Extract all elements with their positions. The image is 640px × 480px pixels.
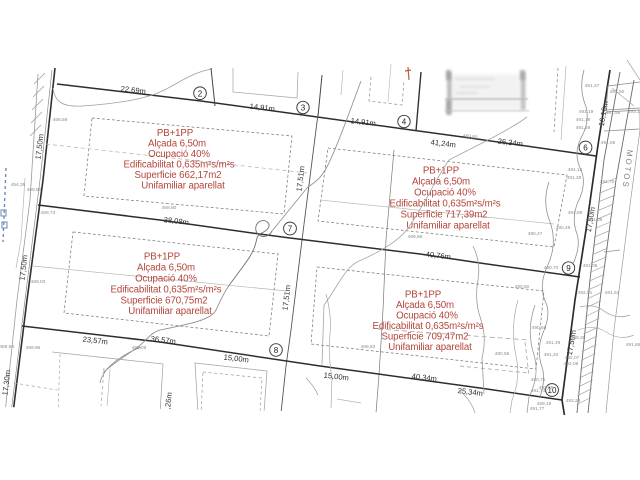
svg-text:8: 8 <box>274 346 279 355</box>
svg-text:469,66: 469,66 <box>408 234 423 240</box>
svg-text:490,55: 490,55 <box>495 351 510 357</box>
svg-text:Superficie 717,39m2: Superficie 717,39m2 <box>401 210 488 221</box>
svg-text:469,73: 469,73 <box>41 210 56 216</box>
svg-text:491,89: 491,89 <box>568 210 583 216</box>
svg-text:4: 4 <box>402 118 407 127</box>
svg-text:PB+1PP: PB+1PP <box>144 252 180 263</box>
svg-text:17,50m: 17,50m <box>33 133 45 160</box>
svg-text:23,57m: 23,57m <box>82 335 108 347</box>
svg-text:PB+1PP: PB+1PP <box>157 128 193 139</box>
svg-text:Ocupació 40%: Ocupació 40% <box>135 274 197 285</box>
svg-text:469,03: 469,03 <box>31 279 46 285</box>
svg-text:491,12: 491,12 <box>568 167 583 173</box>
svg-text:7: 7 <box>288 225 293 234</box>
svg-text:491,70: 491,70 <box>600 179 615 185</box>
svg-text:491,19: 491,19 <box>579 109 594 115</box>
svg-text:491,28: 491,28 <box>567 175 582 181</box>
svg-text:17,50m: 17,50m <box>565 329 578 356</box>
svg-text:469,80: 469,80 <box>162 205 177 211</box>
svg-text:469,90: 469,90 <box>27 187 42 193</box>
svg-text:490,50: 490,50 <box>515 284 530 290</box>
svg-text:493,18: 493,18 <box>628 109 640 115</box>
svg-text:3: 3 <box>301 104 306 113</box>
svg-text:Unifamiliar aparellat: Unifamiliar aparellat <box>406 221 490 232</box>
svg-text:492,01: 492,01 <box>578 290 593 296</box>
svg-text:469,80: 469,80 <box>462 133 478 141</box>
svg-text:454,35: 454,35 <box>11 182 26 188</box>
svg-text:469,96: 469,96 <box>26 345 41 351</box>
svg-text:17,30m: 17,30m <box>0 369 12 396</box>
svg-text:149,36: 149,36 <box>571 335 586 341</box>
svg-text:17,51m: 17,51m <box>280 284 292 311</box>
svg-text:Unifamiliar aparellat: Unifamiliar aparellat <box>388 342 472 353</box>
svg-text:Edificabilitat 0,635m²s/m²s: Edificabilitat 0,635m²s/m²s <box>373 321 484 332</box>
svg-text:Ocupació 40%: Ocupació 40% <box>396 311 458 322</box>
svg-text:PB+1PP: PB+1PP <box>405 290 441 301</box>
svg-text:26,34m: 26,34m <box>497 137 523 149</box>
svg-text:490,47: 490,47 <box>528 231 543 237</box>
svg-text:491,18: 491,18 <box>576 117 591 123</box>
svg-text:Ocupació 40%: Ocupació 40% <box>148 149 210 160</box>
svg-text:Edificabilitat 0,635m²s/m²s: Edificabilitat 0,635m²s/m²s <box>390 199 501 210</box>
svg-text:Superficie 670,75m2: Superficie 670,75m2 <box>121 296 208 307</box>
svg-text:Alçada 6,50m: Alçada 6,50m <box>396 300 454 311</box>
svg-text:Alçada 6,50m: Alçada 6,50m <box>148 139 206 150</box>
svg-text:Edificabilitat 0,635m²s/m²s: Edificabilitat 0,635m²s/m²s <box>111 285 222 296</box>
svg-text:492,23: 492,23 <box>566 398 581 404</box>
svg-text:15,00m: 15,00m <box>223 353 249 365</box>
svg-text:22,69m: 22,69m <box>120 84 146 96</box>
svg-text:491,28: 491,28 <box>576 125 591 131</box>
svg-text:490,49: 490,49 <box>556 225 571 231</box>
svg-text:491,40: 491,40 <box>544 352 559 358</box>
svg-text:491,65: 491,65 <box>626 342 640 348</box>
svg-text:491,59: 491,59 <box>601 140 616 146</box>
svg-text:36,57m: 36,57m <box>150 334 176 346</box>
svg-text:38,08m: 38,08m <box>163 215 189 227</box>
svg-text:491,49: 491,49 <box>546 340 561 346</box>
svg-text:Superficie 662,17m2: Superficie 662,17m2 <box>135 170 222 181</box>
svg-text:492,07: 492,07 <box>565 355 580 361</box>
svg-text:491,77: 491,77 <box>530 406 545 412</box>
svg-text:Edificabilitat 0,635m²s/m²s: Edificabilitat 0,635m²s/m²s <box>124 160 235 171</box>
svg-text:Superficie 709,47m2: Superficie 709,47m2 <box>382 332 469 343</box>
svg-text:481,56: 481,56 <box>606 110 621 116</box>
svg-text:MOTOS: MOTOS <box>621 149 635 189</box>
svg-text:Alçada 6,50m: Alçada 6,50m <box>137 263 195 274</box>
svg-text:40,76m: 40,76m <box>425 250 451 262</box>
svg-text:41,24m: 41,24m <box>430 138 456 150</box>
svg-text:490,65: 490,65 <box>532 325 547 331</box>
svg-text:9: 9 <box>566 264 571 273</box>
svg-text:491,37: 491,37 <box>585 83 600 89</box>
svg-text:PB+1PP: PB+1PP <box>423 166 459 177</box>
svg-text:481,50: 481,50 <box>610 89 625 95</box>
svg-text:17,51m: 17,51m <box>294 165 306 192</box>
svg-text:468,59: 468,59 <box>53 117 68 123</box>
svg-text:Ocupació 40%: Ocupació 40% <box>414 188 476 199</box>
svg-text:2: 2 <box>198 90 203 99</box>
svg-text:Alçada 6,50m: Alçada 6,50m <box>412 177 470 188</box>
svg-text:Unifamiliar aparellat: Unifamiliar aparellat <box>128 306 212 317</box>
svg-text:40,34m: 40,34m <box>411 372 437 384</box>
svg-text:491,08: 491,08 <box>583 263 598 269</box>
svg-text:481,53: 481,53 <box>605 290 620 296</box>
svg-text:15,00m: 15,00m <box>323 371 349 383</box>
svg-text:469,63: 469,63 <box>361 344 376 350</box>
svg-text:491,08: 491,08 <box>588 217 603 223</box>
svg-text:491,74: 491,74 <box>531 388 546 394</box>
svg-text:6: 6 <box>583 144 588 153</box>
svg-text:490,70: 490,70 <box>544 265 559 271</box>
svg-text:469,98: 469,98 <box>0 344 14 350</box>
svg-text:490,76: 490,76 <box>531 377 546 383</box>
svg-text:,26m: ,26m <box>163 392 174 410</box>
svg-text:Unifamiliar aparellat: Unifamiliar aparellat <box>141 181 225 192</box>
svg-text:492,06: 492,06 <box>564 361 579 367</box>
svg-text:14,91m: 14,91m <box>249 102 275 114</box>
svg-text:14,91m: 14,91m <box>350 116 376 128</box>
